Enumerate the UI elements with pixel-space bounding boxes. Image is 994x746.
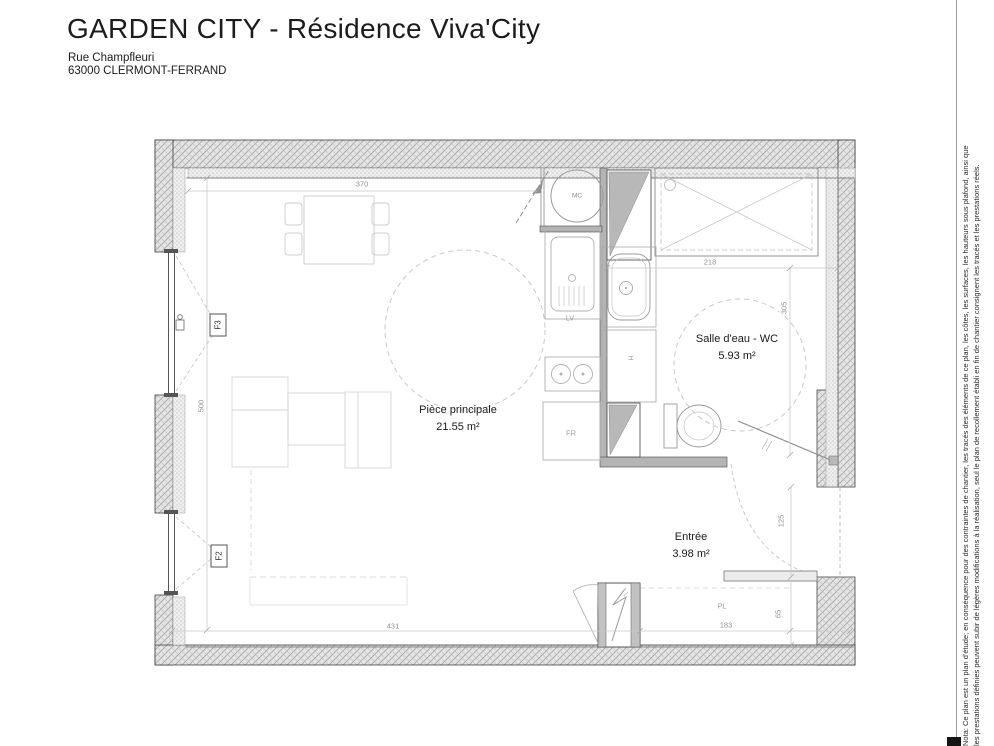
room-area: 3.98 m²: [672, 546, 709, 563]
corner-mark: [947, 737, 961, 746]
technical-shaft-lower: [607, 403, 640, 457]
dim-bathroom-width: 218: [702, 258, 719, 267]
room-name: Entrée: [672, 529, 709, 546]
window-tag-f2: F2: [211, 545, 228, 568]
room-label-main: Pièce principale 21.55 m²: [419, 402, 497, 436]
technical-shaft-upper: [607, 170, 651, 260]
dim-closet-depth: 65: [774, 608, 783, 620]
towel-radiator-box: [602, 330, 656, 402]
label-sink: LV: [566, 314, 575, 323]
window-tag-text: F2: [215, 551, 224, 560]
floorplan-page: GARDEN CITY - Résidence Viva'City Rue Ch…: [0, 0, 994, 746]
room-area: 21.55 m²: [419, 419, 497, 436]
kitchen-counter: [545, 231, 600, 319]
room-name: Salle d'eau - WC: [696, 331, 778, 348]
disclaimer-text: Nota: Ce plan est un plan d'étude; en co…: [960, 0, 986, 746]
dim-closet-width: 183: [718, 621, 735, 630]
entry-door: [573, 583, 640, 647]
closet-shelf: [724, 571, 817, 581]
dining-table: [285, 196, 389, 264]
window-tag-text: F3: [214, 320, 223, 329]
turning-circle-main: [385, 250, 545, 410]
label-towel-radiator: H: [627, 355, 634, 360]
window-tag-f3: F3: [210, 314, 227, 337]
room-name: Pièce principale: [419, 402, 497, 419]
label-water-heater: MC: [572, 193, 582, 200]
dim-room-width-bottom: 431: [385, 622, 402, 631]
dim-entry-niche: 125: [777, 513, 786, 530]
dim-room-height-left: 500: [197, 398, 206, 415]
label-closet: PL: [717, 602, 726, 611]
floorplan-drawing: [0, 0, 994, 746]
room-label-bathroom: Salle d'eau - WC 5.93 m²: [696, 331, 778, 365]
dim-room-width-top: 370: [354, 180, 371, 189]
disclaimer-line-2: les prestations définies peuvent subir d…: [971, 0, 982, 746]
sofa-bed-outline: [232, 377, 391, 570]
room-area: 5.93 m²: [696, 348, 778, 365]
shower: [655, 168, 818, 256]
room-label-entry: Entrée 3.98 m²: [672, 529, 709, 563]
dim-bathroom-depth: 305: [780, 300, 789, 317]
wardrobe-dashed: [250, 577, 407, 605]
label-fridge: FR: [566, 429, 576, 438]
cooktop: [545, 357, 600, 391]
disclaimer-line-1: Nota: Ce plan est un plan d'étude; en co…: [960, 0, 971, 746]
turning-circle-bath: [674, 299, 806, 431]
disclaimer-divider: [956, 0, 957, 746]
